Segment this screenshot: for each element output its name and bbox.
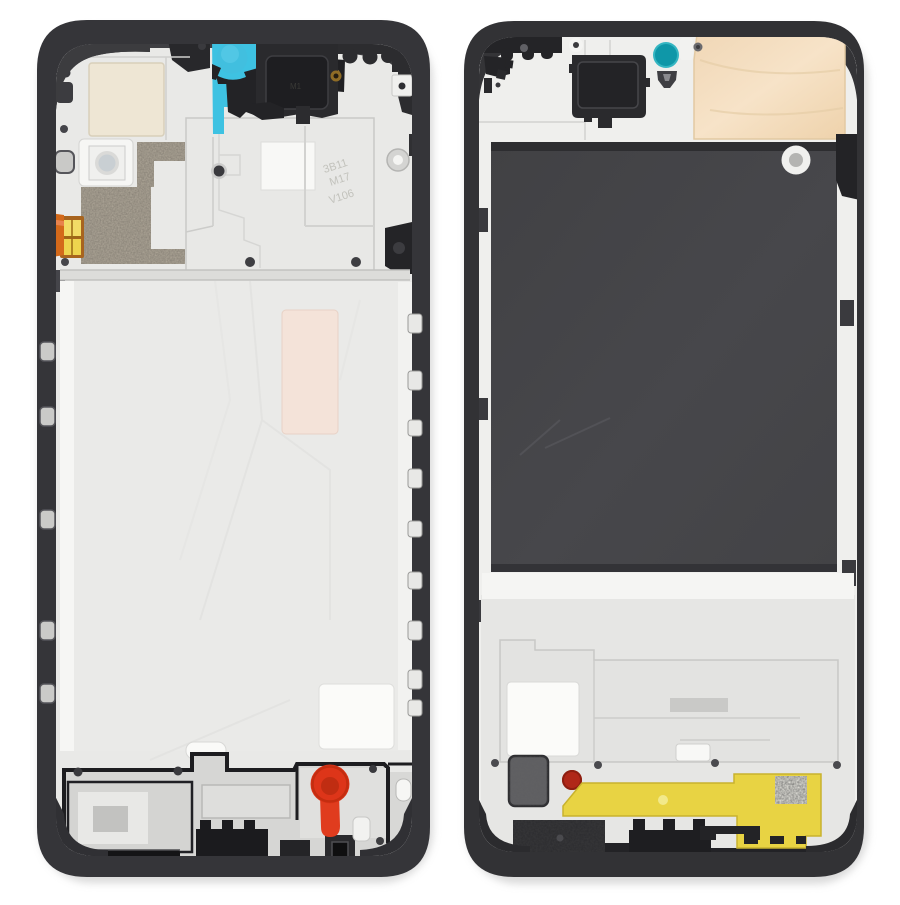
svg-text:M1: M1 [290,82,302,91]
